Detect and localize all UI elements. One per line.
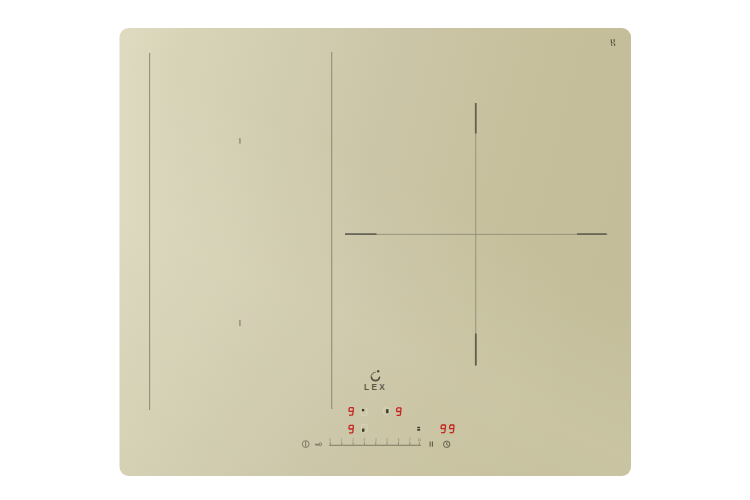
svg-text:LEX: LEX bbox=[364, 383, 387, 392]
svg-text:14: 14 bbox=[418, 438, 422, 442]
